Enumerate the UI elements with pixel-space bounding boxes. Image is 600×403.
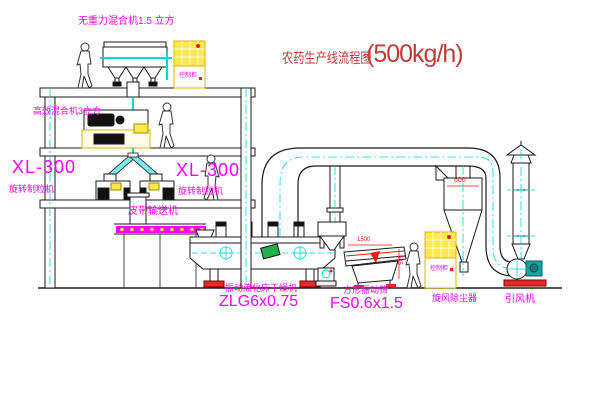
person-figure bbox=[77, 43, 92, 88]
fan-label: 引风机 bbox=[505, 295, 535, 305]
dryer-name: 振动流化床干燥机 bbox=[225, 284, 297, 293]
control-cabinet-2 bbox=[425, 232, 456, 288]
screen-height-dim: 545 bbox=[396, 255, 402, 265]
control-cabinet-1 bbox=[174, 41, 205, 88]
screen-length-dim: 1500 bbox=[357, 237, 370, 243]
granulator-left-name: 旋转制粒机 bbox=[9, 185, 54, 194]
dryer-top-flanges bbox=[216, 222, 328, 237]
cyclone-label: 旋风除尘器 bbox=[432, 294, 477, 303]
screen-feeder-motor bbox=[316, 268, 336, 286]
floor-slab-mid bbox=[40, 148, 255, 156]
person-figure bbox=[159, 103, 174, 148]
diagram-title-capacity: (500kg/h) bbox=[366, 42, 463, 67]
indicator-light-icon bbox=[447, 235, 451, 239]
high-efficiency-mixer-label: 高效混合机3立方 bbox=[33, 107, 101, 116]
flow-diagram-canvas: 无重力混合机1.5 立方 农药生产线流程图 (500kg/h) 高效混合机3立方… bbox=[0, 0, 600, 403]
granulator-left-model: XL-300 bbox=[12, 158, 76, 176]
mixer-discharge-chute bbox=[127, 82, 139, 97]
diagram-title: 农药生产线流程图 bbox=[282, 51, 372, 65]
control-cabinet-1-label: 控制柜 bbox=[179, 73, 197, 79]
control-cabinet-2-label: 控制柜 bbox=[430, 266, 448, 272]
belt-conveyor-label: 皮带输送机 bbox=[128, 207, 178, 217]
exhaust-stack bbox=[507, 141, 535, 262]
screen-name: 方形振动筛 bbox=[343, 286, 388, 295]
granulator-left-machine bbox=[96, 174, 130, 200]
induced-draft-fan-machine bbox=[504, 259, 546, 286]
indicator-light-icon bbox=[196, 44, 200, 48]
right-column bbox=[241, 88, 251, 288]
floor-slab-top bbox=[40, 88, 255, 97]
dryer-model: ZLG6x0.75 bbox=[219, 294, 298, 310]
person-figure bbox=[406, 243, 421, 288]
granulator-center-name: 旋转制粒机 bbox=[178, 187, 223, 196]
granulator-center-model: XL-300 bbox=[176, 161, 240, 179]
gravity-mixer-label: 无重力混合机1.5 立方 bbox=[78, 17, 175, 27]
cyclone-diameter-dim: 600 bbox=[454, 177, 466, 184]
screen-model: FS0.6x1.5 bbox=[330, 296, 403, 312]
